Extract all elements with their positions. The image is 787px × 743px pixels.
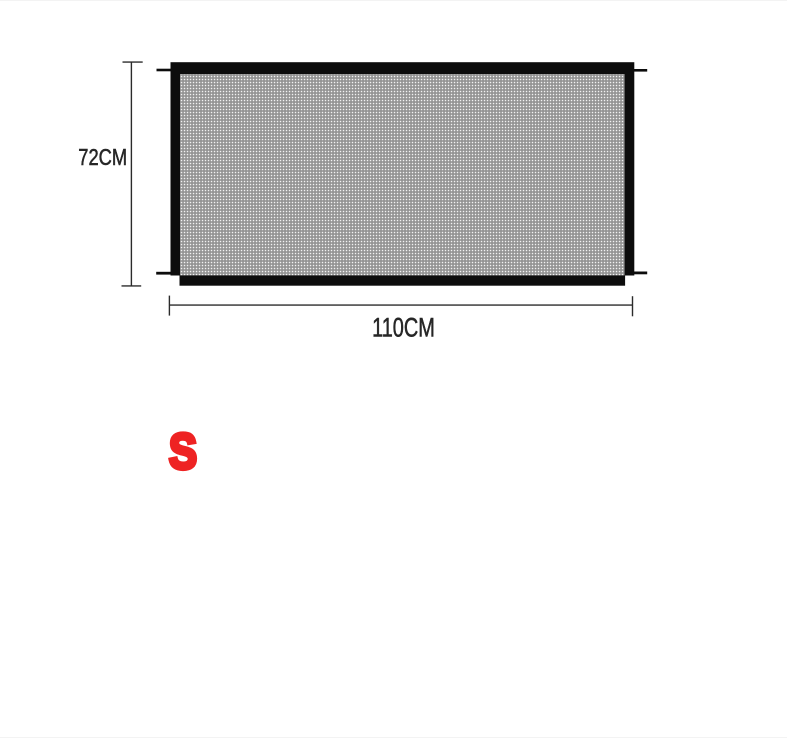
svg-text:S: S <box>169 424 197 480</box>
svg-text:110CM: 110CM <box>372 312 435 342</box>
svg-text:72CM: 72CM <box>78 144 127 170</box>
